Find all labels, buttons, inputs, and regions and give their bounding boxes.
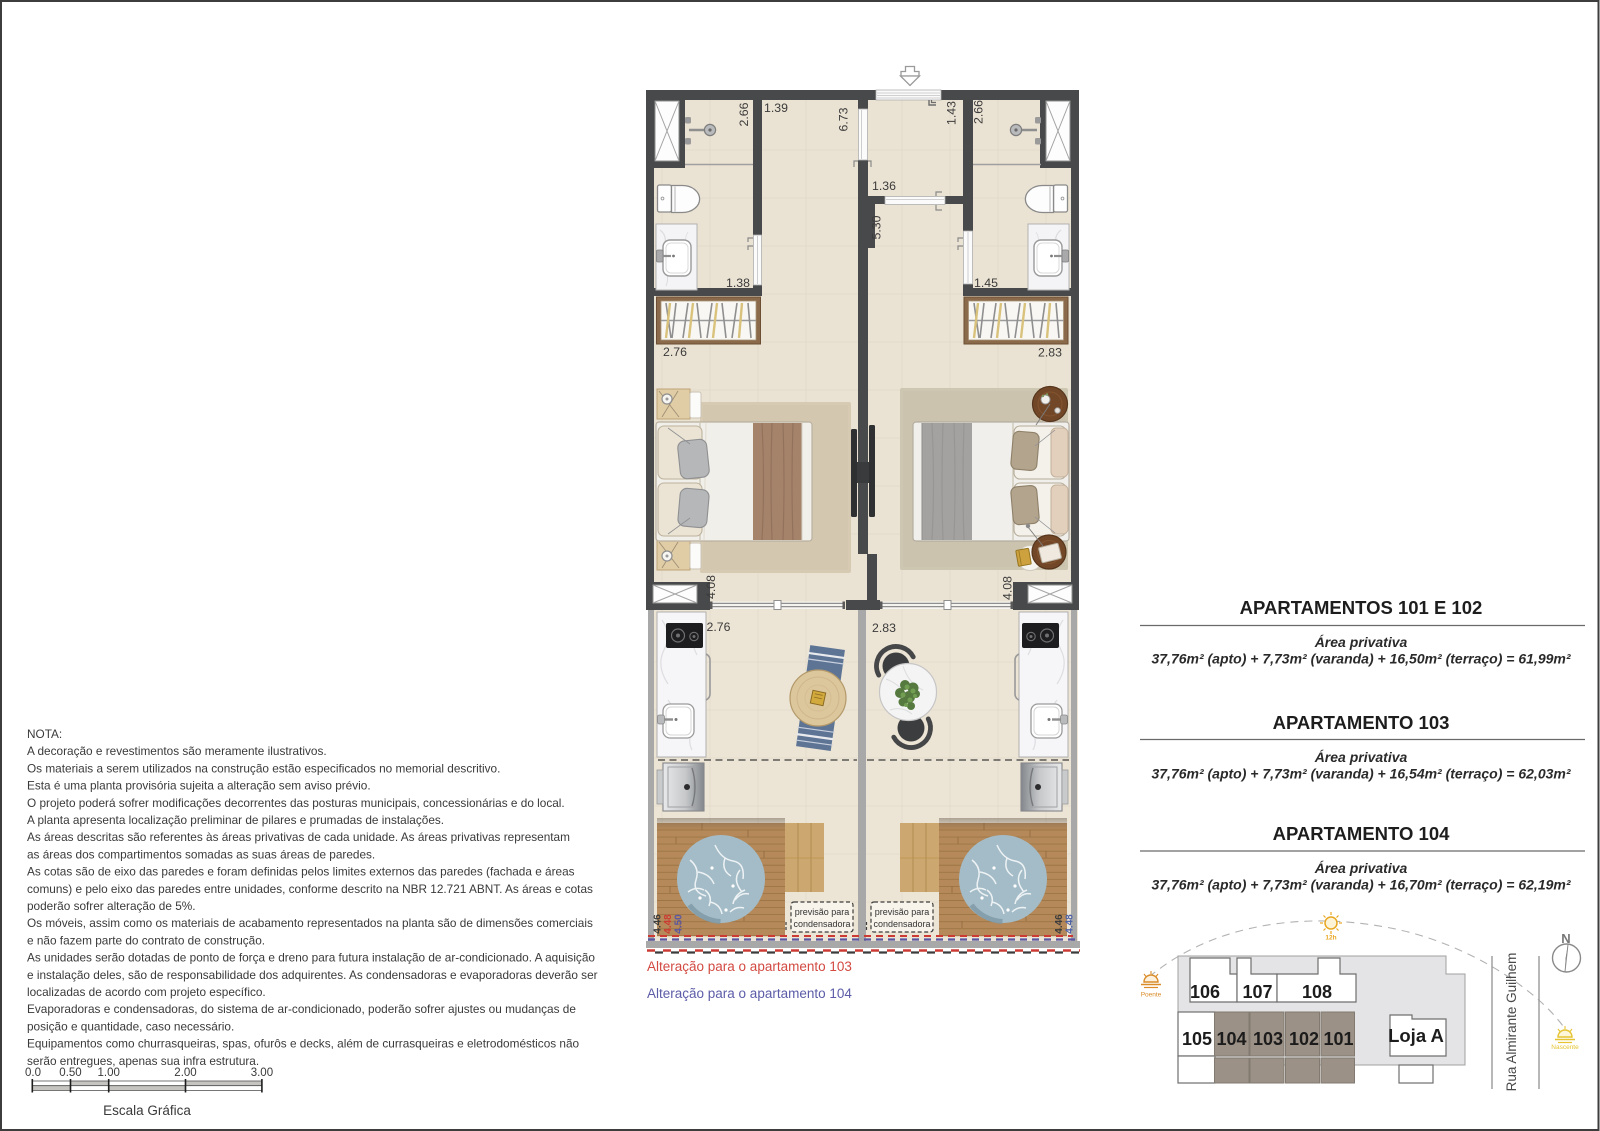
svg-text:2.83: 2.83	[872, 621, 896, 635]
svg-text:comuns) e pelo eixo das parede: comuns) e pelo eixo das paredes entre un…	[27, 882, 593, 896]
svg-text:APARTAMENTO 103: APARTAMENTO 103	[1273, 712, 1450, 733]
svg-text:4.50: 4.50	[674, 914, 685, 934]
svg-text:Área privativa: Área privativa	[1314, 634, 1408, 650]
svg-text:2.76: 2.76	[707, 620, 731, 634]
svg-text:1.39: 1.39	[764, 101, 788, 115]
svg-text:104: 104	[1216, 1029, 1246, 1049]
svg-text:5.30: 5.30	[870, 215, 884, 239]
svg-text:as áreas dos compartimentos so: as áreas dos compartimentos somadas as s…	[27, 847, 375, 861]
svg-text:As cotas são de eixo das pared: As cotas são de eixo das paredes e foram…	[27, 865, 575, 879]
svg-text:Escala Gráfica: Escala Gráfica	[103, 1103, 191, 1118]
svg-text:APARTAMENTOS 101 E 102: APARTAMENTOS 101 E 102	[1240, 597, 1483, 618]
svg-text:localizadas de acordo com proj: localizadas de acordo com projeto especí…	[27, 985, 266, 999]
svg-text:e instalação deles, são de res: e instalação deles, são de responsabilid…	[27, 968, 598, 982]
svg-text:1.45: 1.45	[974, 276, 998, 290]
svg-text:37,76m² (apto) + 7,73m² (varan: 37,76m² (apto) + 7,73m² (varanda) + 16,5…	[1151, 651, 1570, 667]
svg-text:107: 107	[1242, 982, 1272, 1002]
svg-text:4.08: 4.08	[704, 575, 718, 599]
svg-text:6.73: 6.73	[837, 107, 851, 131]
svg-text:1.38: 1.38	[726, 276, 750, 290]
svg-text:Esta é uma planta provisória s: Esta é uma planta provisória sujeita a a…	[27, 779, 371, 793]
svg-text:0.50: 0.50	[59, 1067, 81, 1079]
svg-text:Área privativa: Área privativa	[1314, 749, 1408, 765]
svg-text:APARTAMENTO 104: APARTAMENTO 104	[1273, 823, 1451, 844]
svg-text:Equipamentos como churrasqueir: Equipamentos como churrasqueiras, spas, …	[27, 1037, 580, 1051]
svg-text:e não fazem parte do contrato: e não fazem parte do contrato de constru…	[27, 933, 265, 947]
svg-text:4.08: 4.08	[1001, 576, 1015, 600]
svg-text:105: 105	[1182, 1029, 1212, 1049]
svg-text:4.46: 4.46	[653, 914, 664, 934]
svg-text:condensadora: condensadora	[873, 919, 930, 929]
svg-text:NOTA:: NOTA:	[27, 727, 62, 741]
svg-text:serão entregues, apenas sua in: serão entregues, apenas sua infra estrut…	[27, 1054, 259, 1068]
svg-text:2.66: 2.66	[972, 100, 986, 124]
svg-text:3.00: 3.00	[251, 1067, 273, 1079]
svg-text:Alteração para o apartamento 1: Alteração para o apartamento 104	[647, 986, 852, 1001]
svg-text:poderão sofrer alteração de 5%: poderão sofrer alteração de 5%.	[27, 899, 196, 913]
svg-text:37,76m² (apto) + 7,73m² (varan: 37,76m² (apto) + 7,73m² (varanda) + 16,7…	[1151, 877, 1570, 893]
svg-text:2.66: 2.66	[737, 102, 751, 126]
svg-text:Evaporadoras e condensadoras,: Evaporadoras e condensadoras, do sistema…	[27, 1002, 576, 1016]
svg-text:2.83: 2.83	[1038, 346, 1062, 360]
svg-text:Alteração para o apartamento 1: Alteração para o apartamento 103	[647, 959, 852, 974]
svg-text:12h: 12h	[1325, 935, 1336, 942]
svg-text:condensadora: condensadora	[793, 919, 850, 929]
svg-text:37,76m² (apto) + 7,73m² (varan: 37,76m² (apto) + 7,73m² (varanda) + 16,5…	[1151, 766, 1570, 782]
svg-text:posição e quantidade, caso nec: posição e quantidade, caso necessário.	[27, 1019, 234, 1033]
svg-text:2.76: 2.76	[663, 345, 687, 359]
svg-text:1.43: 1.43	[945, 101, 959, 125]
svg-text:102: 102	[1289, 1029, 1319, 1049]
svg-text:0.0: 0.0	[25, 1067, 41, 1079]
svg-text:Rua Almirante Guilhem: Rua Almirante Guilhem	[1504, 953, 1519, 1092]
svg-text:106: 106	[1190, 982, 1220, 1002]
svg-text:As áreas descritas são referen: As áreas descritas são referentes às áre…	[27, 830, 570, 844]
svg-text:2.00: 2.00	[174, 1067, 196, 1079]
svg-text:Os móveis, assim como os mater: Os móveis, assim como os materiais de ac…	[27, 916, 593, 930]
svg-text:Área privativa: Área privativa	[1314, 860, 1408, 876]
svg-text:1.00: 1.00	[98, 1067, 120, 1079]
svg-text:4.46: 4.46	[1054, 914, 1065, 934]
svg-text:4.48: 4.48	[1065, 914, 1076, 934]
svg-text:As unidades serão dotadas de p: As unidades serão dotadas de ponto de fo…	[27, 951, 595, 965]
svg-text:previsão para: previsão para	[795, 907, 850, 917]
svg-text:Loja A: Loja A	[1388, 1025, 1444, 1046]
svg-text:Nascente: Nascente	[1551, 1044, 1579, 1051]
svg-text:Os materiais a serem utilizado: Os materiais a serem utilizados na const…	[27, 761, 500, 775]
svg-text:O projeto poderá sofrer modifi: O projeto poderá sofrer modificações dec…	[27, 796, 565, 810]
svg-text:Poente: Poente	[1141, 992, 1162, 999]
svg-text:103: 103	[1253, 1029, 1283, 1049]
svg-text:101: 101	[1323, 1029, 1353, 1049]
svg-text:4.48: 4.48	[663, 914, 674, 934]
svg-text:A planta apresenta localização: A planta apresenta localização prelimina…	[27, 813, 444, 827]
svg-text:A decoração e revestimentos sã: A decoração e revestimentos são merament…	[27, 744, 327, 758]
svg-text:1.36: 1.36	[872, 179, 896, 193]
svg-text:previsão para: previsão para	[875, 907, 930, 917]
svg-text:108: 108	[1302, 982, 1332, 1002]
